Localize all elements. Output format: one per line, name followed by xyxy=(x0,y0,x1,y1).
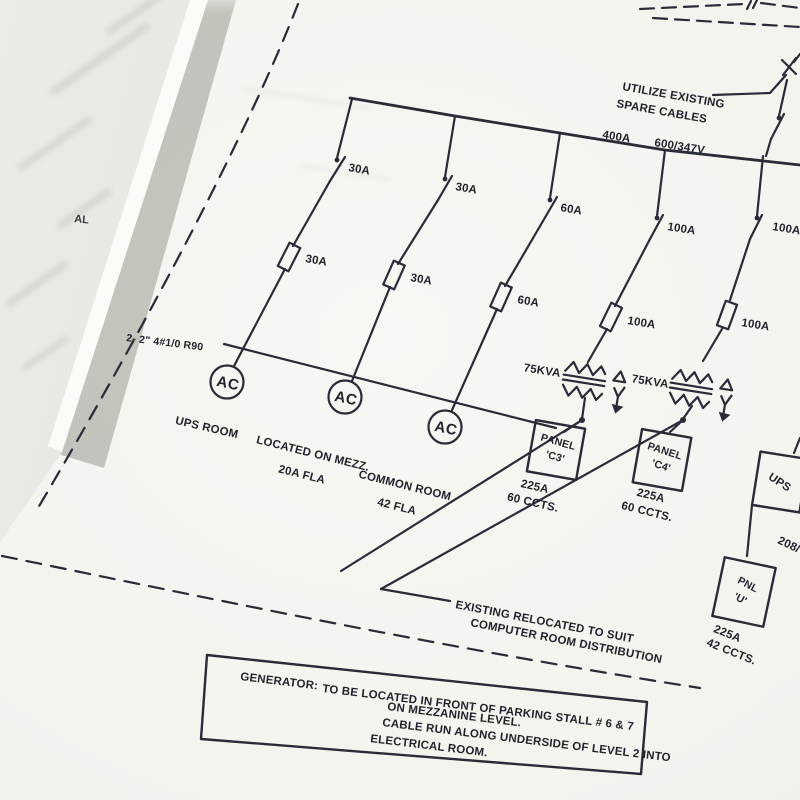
r90-feeder-line xyxy=(224,344,556,428)
ups-voltage-tag: 208/ xyxy=(776,535,800,556)
top-right-dashed-enclosure xyxy=(640,0,800,27)
ac-unit-2-label1: LOCATED ON MEZZ. xyxy=(255,434,371,474)
wye-ground-symbol xyxy=(717,394,733,423)
photo-of-drawing: AL UTILIZE EXISTING SPARE CABLES xyxy=(0,0,800,800)
bus-voltage-label: 600/347V xyxy=(654,137,706,157)
drawing-border-bottom xyxy=(2,556,700,688)
spare-cable-connection xyxy=(713,54,800,156)
generator-note-line1: TO BE LOCATED IN FRONT OF PARKING STALL … xyxy=(322,683,635,733)
feeder-2-switch-rating: 30A xyxy=(454,181,477,197)
wye-ground-symbol xyxy=(610,386,626,415)
fuse-symbol xyxy=(600,303,622,332)
ac-unit-1-label: UPS ROOM xyxy=(174,415,239,441)
core-bars xyxy=(670,383,712,395)
ac-unit-1-symbol: AC xyxy=(215,373,241,394)
feeder-4-fuse-rating: 100A xyxy=(627,315,657,331)
page-margin-text-fragment: AL xyxy=(74,213,90,226)
cable-tag-label: 2- 2" 4#1/0 R90 xyxy=(126,332,204,353)
ac-unit-2-label2: 20A FLA xyxy=(277,464,326,487)
delta-symbol xyxy=(613,371,626,383)
fuse-symbol xyxy=(490,283,512,312)
panel-c4-name1: PANEL xyxy=(646,440,684,463)
delta-symbol xyxy=(720,379,733,391)
ups-to-panel-line xyxy=(747,505,752,556)
feeder-3-fuse-rating: 60A xyxy=(516,294,539,310)
secondary-winding xyxy=(668,393,709,409)
primary-winding xyxy=(565,361,606,377)
ups-label: UPS xyxy=(766,471,793,494)
generator-note-label: GENERATOR: xyxy=(240,671,319,692)
fuse-symbol xyxy=(278,243,300,272)
panel-u: PNL 'U' xyxy=(712,557,775,627)
feeder-1 xyxy=(211,99,353,399)
note-leader-line xyxy=(713,75,786,95)
feeder-2-fuse-rating: 30A xyxy=(409,272,432,288)
single-line-diagram: AL UTILIZE EXISTING SPARE CABLES xyxy=(0,0,800,800)
ups-feed-line xyxy=(794,438,800,453)
cable-crossing-ticks xyxy=(747,0,757,9)
feeder-2 xyxy=(329,116,456,414)
fuse-symbol xyxy=(717,301,737,330)
ac-unit-3-label1: COMMON ROOM xyxy=(357,469,452,504)
panel-c4-rating: 225A xyxy=(636,487,666,505)
ups-unit: UPS xyxy=(752,452,800,513)
bus-rating-label: 400A xyxy=(602,129,632,145)
transformer-1-rating: 75KVA xyxy=(523,362,562,380)
core-bars xyxy=(563,375,605,387)
ac-unit-3-symbol: AC xyxy=(433,418,459,439)
feeder-3-switch-rating: 60A xyxy=(559,202,582,218)
transformer-1 xyxy=(560,361,627,432)
panel-c4-name2: 'C4' xyxy=(650,457,672,474)
feeder-5-switch-rating: 100A xyxy=(772,221,800,237)
panel-u-box xyxy=(712,557,775,627)
feeder-4-switch-rating: 100A xyxy=(667,221,697,237)
feeder-3 xyxy=(429,133,561,444)
spare-tap-symbol xyxy=(782,54,800,75)
feeder-1-fuse-rating: 30A xyxy=(304,253,327,269)
panel-c3-name2: 'C3' xyxy=(544,449,566,466)
primary-winding xyxy=(672,369,713,385)
panel-c4: PANEL 'C4' xyxy=(633,429,692,491)
main-bus xyxy=(350,98,800,165)
ac-unit-2-symbol: AC xyxy=(333,388,359,409)
ac-unit-3-label2: 42 FLA xyxy=(376,496,417,517)
drawing-border-left xyxy=(38,4,298,508)
note-leader-line xyxy=(381,589,450,601)
feeder-1-switch-rating: 30A xyxy=(347,162,370,178)
panel-c3-rating: 225A xyxy=(520,478,550,496)
feeder-5-fuse-rating: 100A xyxy=(741,317,771,333)
panel-u-name2: 'U' xyxy=(732,591,749,608)
fuse-symbol xyxy=(383,261,405,290)
panel-c4-circuits: 60 CCTS. xyxy=(620,500,673,524)
secondary-winding xyxy=(561,385,602,401)
transformer-2-rating: 75KVA xyxy=(631,373,670,391)
